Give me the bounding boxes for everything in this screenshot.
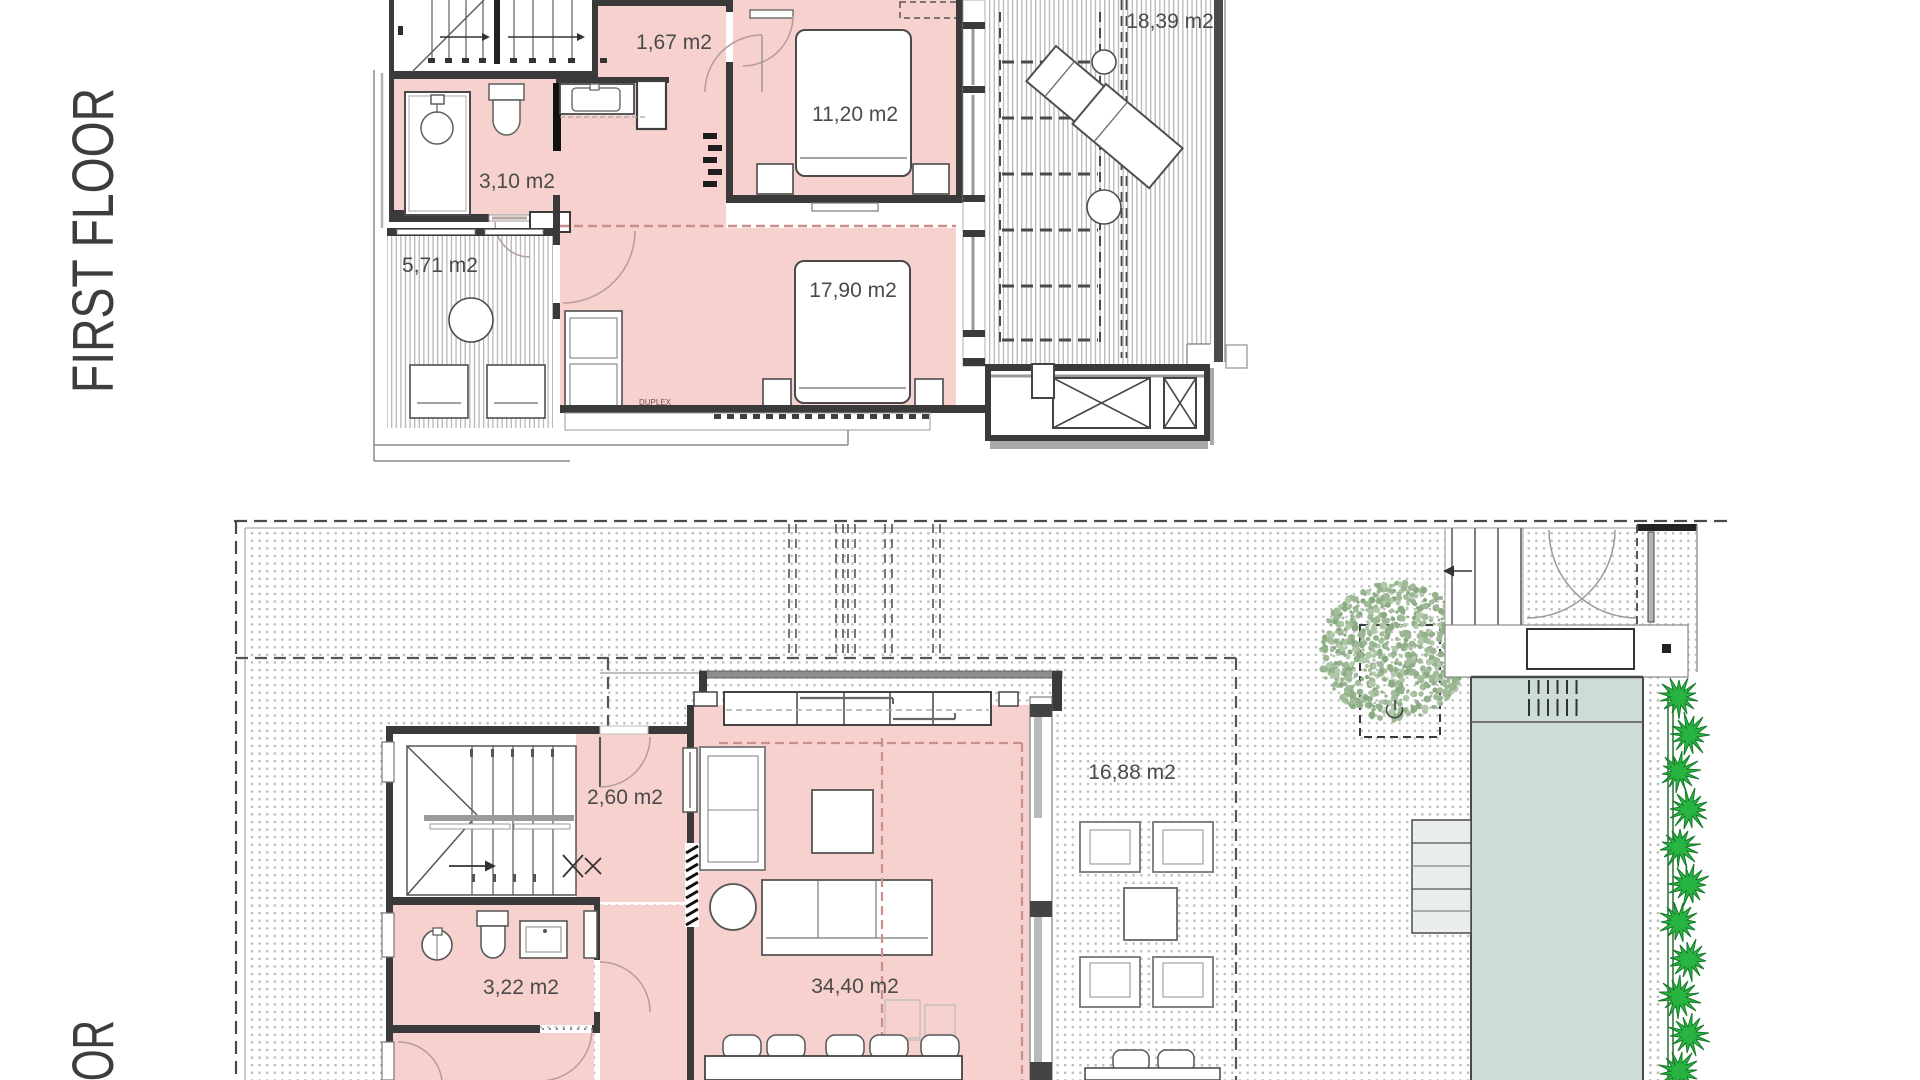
svg-text:3,22 m2: 3,22 m2 <box>483 976 559 999</box>
svg-text:2,60 m2: 2,60 m2 <box>587 786 663 809</box>
svg-text:5,71 m2: 5,71 m2 <box>402 254 478 277</box>
svg-text:FIRST FLOOR: FIRST FLOOR <box>61 88 126 393</box>
svg-text:3,10 m2: 3,10 m2 <box>479 170 555 193</box>
svg-text:17,90 m2: 17,90 m2 <box>809 279 897 302</box>
svg-text:34,40 m2: 34,40 m2 <box>811 975 899 998</box>
svg-text:11,20 m2: 11,20 m2 <box>812 103 898 126</box>
svg-text:1,67 m2: 1,67 m2 <box>636 31 712 54</box>
svg-text:18,39 m2: 18,39 m2 <box>1126 10 1214 33</box>
svg-text:GROUND FLOOR: GROUND FLOOR <box>61 1020 126 1080</box>
svg-text:16,88 m2: 16,88 m2 <box>1088 761 1176 784</box>
